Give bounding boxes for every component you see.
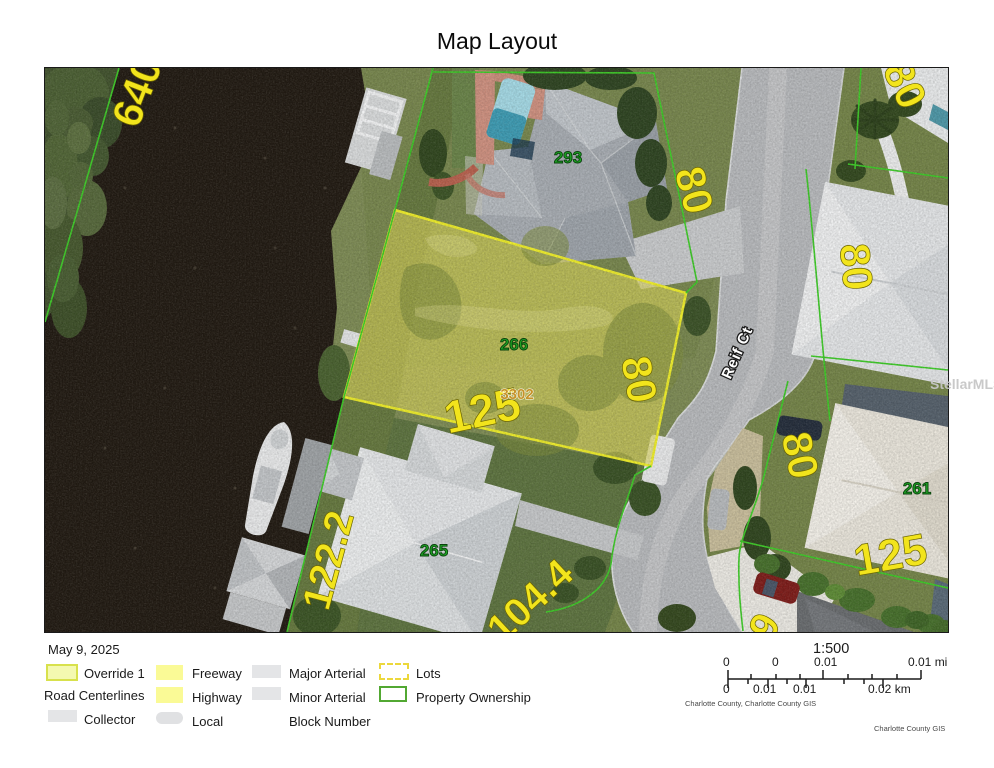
svg-text:80: 80 [831, 241, 882, 292]
svg-text:265: 265 [420, 541, 448, 560]
svg-text:266: 266 [500, 335, 528, 354]
svg-text:80: 80 [612, 352, 666, 406]
svg-text:293: 293 [554, 148, 582, 167]
svg-text:80: 80 [772, 428, 828, 483]
svg-text:261: 261 [903, 479, 931, 498]
svg-text:3302: 3302 [500, 386, 533, 403]
